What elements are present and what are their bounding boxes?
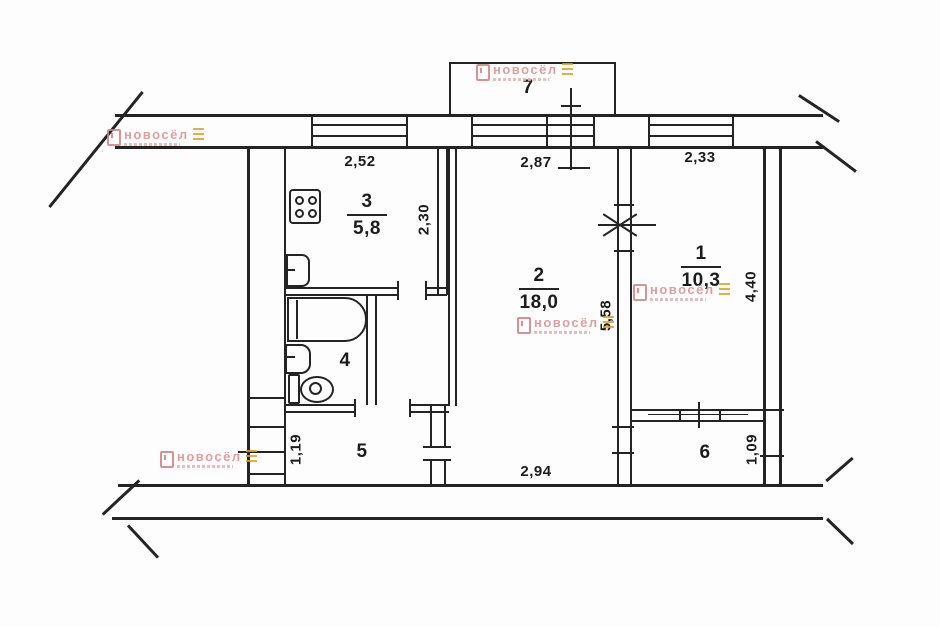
window-line: [471, 114, 473, 149]
novosel-watermark: новосёл: [107, 128, 204, 146]
room-2-fraction-line: [519, 288, 559, 290]
toilet-bowl-icon: [309, 382, 322, 395]
bathtub-icon: [287, 297, 367, 342]
wall-line: [426, 287, 447, 289]
dim-room2-window-width: 2,87: [506, 155, 566, 170]
novosel-award-badge-icon: [719, 283, 730, 298]
window-line: [313, 135, 407, 137]
washbasin-tap-icon: [286, 356, 295, 358]
wall-line: [430, 405, 432, 447]
novosel-award-badge-icon: [193, 128, 204, 143]
room-6-number: 6: [690, 443, 720, 463]
wall-line: [284, 294, 398, 296]
novosel-house-icon: [633, 284, 647, 301]
window-line: [679, 409, 681, 422]
window-line: [593, 114, 595, 149]
room-2-label: 2 18,0: [509, 266, 569, 313]
x-door-mark: [598, 224, 656, 226]
dim-kitchen-window-width: 2,52: [330, 154, 390, 169]
wall-line: [426, 294, 447, 296]
dim-kitchen-depth: 2,30: [417, 190, 432, 250]
wall-division-tick: [612, 426, 634, 428]
room-2-number: 2: [509, 266, 569, 286]
door-tick: [397, 281, 399, 300]
dim-room1-depth: 4,40: [744, 257, 759, 317]
window-line: [473, 135, 595, 137]
novosel-watermark-text: новосёл: [534, 316, 599, 329]
wall-break-line: [48, 91, 143, 208]
room-4-label: 4: [330, 351, 360, 371]
room-5-label: 5: [347, 442, 377, 462]
window-line: [719, 409, 721, 422]
novosel-watermark: новосёл: [160, 450, 257, 468]
dim-room2-bottom-width: 2,94: [506, 464, 566, 479]
dim-hall-depth: 1,19: [289, 420, 304, 480]
wall-line: [437, 148, 439, 295]
novosel-house-icon: [107, 129, 121, 146]
stove-icon: [289, 189, 321, 224]
door-tick: [409, 399, 411, 417]
window-line: [313, 124, 407, 126]
novosel-tagline-line: [493, 78, 549, 81]
room-3-label: 3 5,8: [337, 192, 397, 239]
dimension-tick: [561, 105, 581, 107]
novosel-watermark: новосёл: [633, 283, 730, 301]
window-line: [648, 114, 650, 149]
door-tick: [354, 399, 356, 417]
door-tick: [423, 446, 451, 448]
novosel-watermark: новосёл: [517, 316, 614, 334]
entrance-divider-line: [247, 397, 286, 399]
wall-line: [112, 517, 823, 520]
burner-icon: [308, 196, 317, 205]
room-5-number: 5: [347, 442, 377, 462]
wall-break-line: [815, 140, 857, 172]
novosel-house-icon: [160, 451, 174, 468]
wall-break-line: [825, 457, 853, 482]
window-line: [406, 114, 408, 149]
novosel-house-icon: [517, 317, 531, 334]
wall-line: [284, 148, 286, 487]
room-3-number: 3: [337, 192, 397, 212]
door-tick: [423, 459, 451, 461]
novosel-award-badge-icon: [246, 450, 257, 465]
wall-break-line: [798, 94, 840, 123]
bathtub-detail-line: [296, 300, 298, 339]
novosel-award-badge-icon: [603, 316, 614, 331]
wall-line: [444, 461, 446, 485]
room-3-fraction-line: [347, 214, 387, 216]
novosel-watermark-text: новосёл: [650, 283, 715, 296]
floorplan: 7 3 5,8 2 18,0 1 10,3 4 5 6 2,52 2,87 2,…: [0, 0, 940, 627]
dim-balcony6-depth: 1,09: [745, 420, 760, 480]
novosel-watermark-text: новосёл: [493, 63, 558, 76]
wall-line: [284, 287, 398, 289]
window-line: [650, 124, 733, 126]
balcony-wall-line: [614, 62, 616, 116]
novosel-watermark: новосёл: [476, 63, 573, 81]
wall-division-tick: [614, 204, 634, 206]
window-line: [732, 114, 734, 149]
novosel-tagline-line: [534, 331, 590, 334]
wall-line: [115, 146, 823, 149]
door-tick: [698, 402, 700, 428]
door-tick: [425, 281, 427, 300]
wall-division-tick: [614, 250, 634, 252]
wall-division-tick: [760, 409, 784, 411]
window-line: [311, 114, 313, 149]
wall-line: [617, 148, 619, 487]
novosel-tagline-line: [650, 298, 706, 301]
wall-break-line: [826, 518, 854, 545]
novosel-award-badge-icon: [562, 63, 573, 78]
window-line: [650, 135, 733, 137]
novosel-house-icon: [476, 64, 490, 81]
burner-icon: [308, 209, 317, 218]
burner-icon: [295, 209, 304, 218]
kitchen-sink-tap-icon: [286, 269, 295, 271]
wall-line: [448, 148, 450, 406]
novosel-tagline-line: [124, 143, 180, 146]
room-2-area: 18,0: [509, 293, 569, 313]
wall-line: [630, 148, 632, 487]
wall-line: [763, 148, 766, 487]
wall-line: [284, 404, 355, 406]
wall-line: [375, 295, 377, 405]
window-line: [546, 114, 548, 149]
wall-line: [430, 461, 432, 485]
wall-line: [118, 484, 823, 487]
room-1-number: 1: [671, 244, 731, 264]
wall-division-tick: [612, 452, 634, 454]
window-line: [473, 124, 595, 126]
wall-line: [115, 114, 823, 117]
wall-line: [455, 148, 457, 406]
novosel-tagline-line: [177, 465, 233, 468]
burner-icon: [295, 196, 304, 205]
novosel-watermark-text: новосёл: [177, 450, 242, 463]
dim-room1-window-width: 2,33: [670, 150, 730, 165]
room-6-label: 6: [690, 443, 720, 463]
wall-division-tick: [760, 455, 784, 457]
room-1-fraction-line: [681, 266, 721, 268]
balcony-door-axis-line: [570, 88, 572, 170]
wall-line: [247, 148, 250, 487]
balcony-wall-line: [449, 62, 451, 116]
wall-line: [444, 405, 446, 447]
novosel-watermark-text: новосёл: [124, 128, 189, 141]
washbasin-icon: [285, 344, 311, 374]
entrance-divider-line: [247, 426, 286, 428]
wall-line: [366, 295, 368, 405]
room-4-number: 4: [330, 351, 360, 371]
toilet-tank-icon: [288, 374, 300, 404]
wall-break-line: [127, 524, 159, 558]
wall-line: [284, 411, 355, 413]
room-3-area: 5,8: [337, 219, 397, 239]
wall-line: [779, 148, 782, 487]
entrance-divider-line: [247, 473, 286, 475]
